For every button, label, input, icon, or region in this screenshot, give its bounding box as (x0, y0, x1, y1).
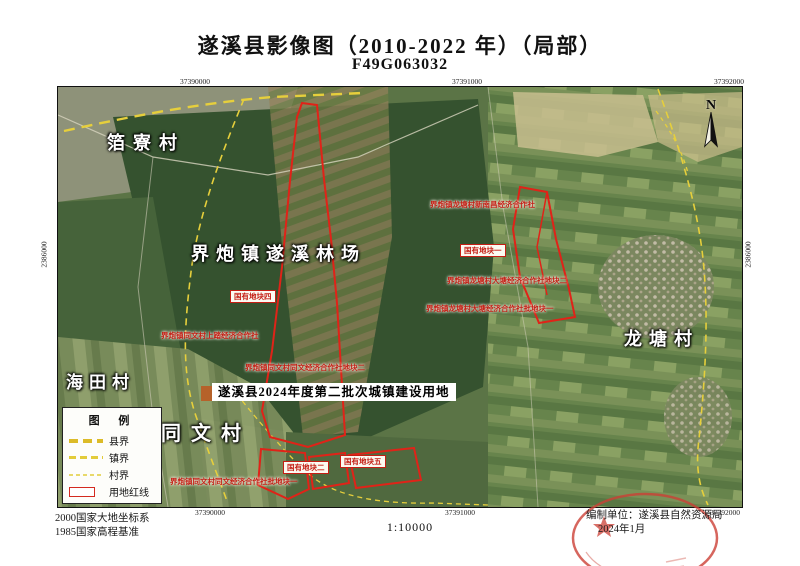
place-label-jiepao-forest-farm: 界炮镇遂溪林场 (191, 240, 366, 266)
map-sheet: 遂溪县影像图（2010-2022 年）（局部） F49G063032 37390… (0, 0, 800, 566)
legend-title: 图 例 (71, 412, 155, 428)
credit-line-1: 编制单位：遂溪县自然资源局 (586, 509, 723, 523)
map-frame: 箔寮村 界炮镇遂溪林场 龙塘村 海田村 同文村 界炮镇龙塘村新南昌经济合作社 界… (57, 86, 743, 508)
legend-item-label: 用地红线 (109, 484, 149, 499)
sheet-code: F49G063032 (0, 56, 800, 74)
datum-line-1: 2000国家大地坐标系 (55, 512, 150, 526)
legend-item-town: 镇界 (69, 449, 155, 466)
project-highlight-label: 遂溪县2024年度第二批次城镇建设用地 (212, 383, 456, 401)
parcel-label-datang-block2: 界炮镇龙塘村大塘经济合作社地块二 (447, 275, 567, 286)
place-label-tongwen-village: 同文村 (161, 417, 251, 446)
town-boundary-sample-icon (69, 456, 103, 459)
place-label-boliao-village: 箔寮村 (107, 129, 185, 155)
legend-item-village: 村界 (69, 466, 155, 483)
parcel-label-datang-block1: 界炮镇龙塘村大塘经济合作社批地块一 (426, 303, 554, 314)
county-boundary-sample-icon (69, 439, 103, 443)
grid-coord-right: 2386000 (744, 225, 753, 285)
state-parcel-label-1: 国有地块一 (460, 244, 506, 257)
redline-sample-icon (69, 487, 103, 497)
datum-note: 2000国家大地坐标系 1985国家高程基准 (55, 512, 150, 540)
grid-coord-left: 2386000 (40, 225, 49, 285)
legend-item-label: 县界 (109, 433, 129, 448)
grid-coord-top-center: 37391000 (437, 77, 497, 86)
place-label-longtang-village: 龙塘村 (624, 325, 699, 351)
datum-line-2: 1985国家高程基准 (55, 526, 150, 540)
parcel-label-tongwen-block1: 界炮镇同文村同文经济合作社批地块一 (170, 476, 298, 487)
credit-note: 编制单位：遂溪县自然资源局 2024年1月 (586, 509, 723, 537)
parcel-label-tongwen-block2: 界炮镇同文村同文经济合作社地块二 (245, 362, 365, 373)
state-parcel-label-5: 国有地块五 (340, 455, 386, 468)
grid-coord-bottom-left: 37390000 (180, 508, 240, 517)
parcel-label-shangta: 界炮镇同文村上踏经济合作社 (161, 330, 259, 341)
credit-line-2: 2024年1月 (598, 523, 723, 537)
place-label-haitian-village: 海田村 (66, 368, 135, 393)
legend-item-redline: 用地红线 (69, 483, 155, 500)
north-label: N (696, 99, 726, 112)
grid-coord-top-right: 37392000 (684, 77, 744, 86)
legend: 图 例 县界 镇界 村界 用地红线 (62, 407, 162, 504)
grid-coord-bottom-center: 37391000 (430, 508, 490, 517)
grid-coord-top-left: 37390000 (165, 77, 225, 86)
map-scale: 1:10000 (340, 520, 480, 535)
north-arrow-icon (702, 112, 720, 152)
village-boundary-sample-icon (69, 474, 103, 476)
state-parcel-label-2: 国有地块二 (283, 461, 329, 474)
state-parcel-label-4: 国有地块四 (230, 290, 276, 303)
north-arrow: N (696, 99, 726, 157)
legend-item-label: 镇界 (109, 450, 129, 465)
parcel-label-xinnanchang: 界炮镇龙塘村新南昌经济合作社 (430, 199, 535, 210)
legend-item-label: 村界 (109, 467, 129, 482)
legend-item-county: 县界 (69, 432, 155, 449)
